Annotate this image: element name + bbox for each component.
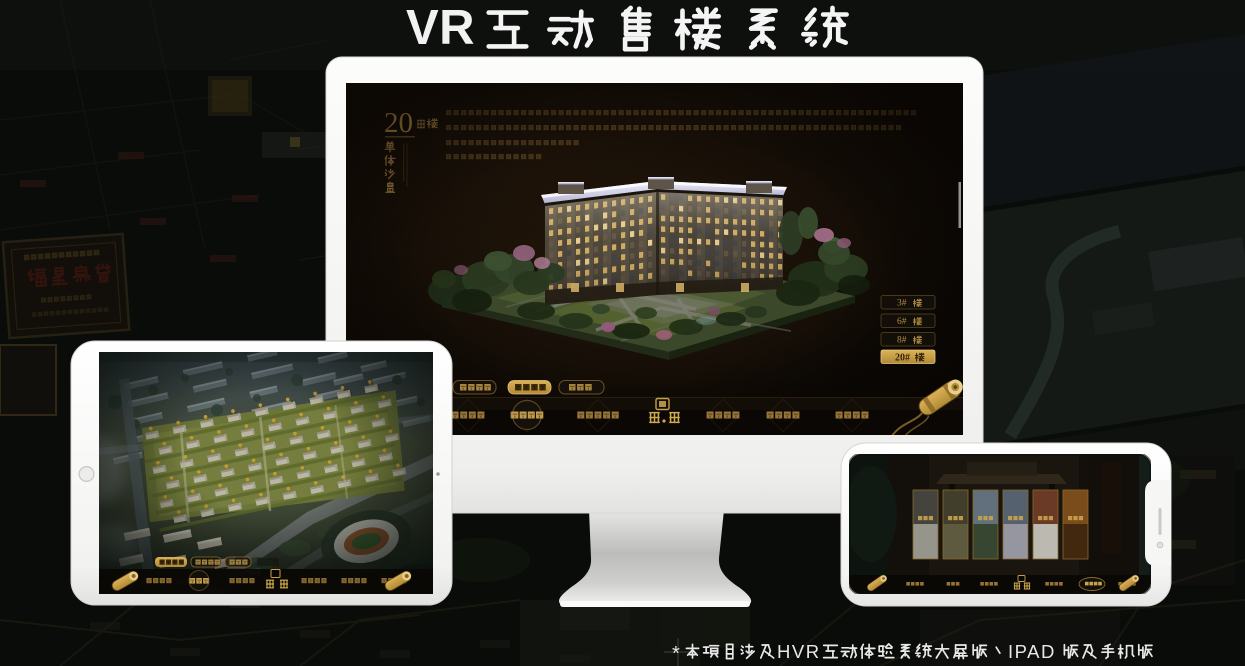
svg-text:*: * <box>672 643 680 665</box>
svg-text:IPAD: IPAD <box>1008 641 1056 662</box>
svg-text:HVR: HVR <box>777 641 821 662</box>
